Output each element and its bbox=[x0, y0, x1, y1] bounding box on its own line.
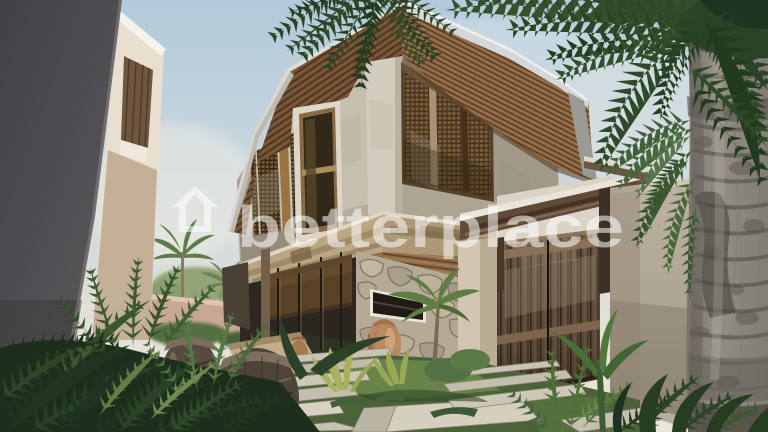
svg-text:betterplace: betterplace bbox=[237, 195, 624, 260]
